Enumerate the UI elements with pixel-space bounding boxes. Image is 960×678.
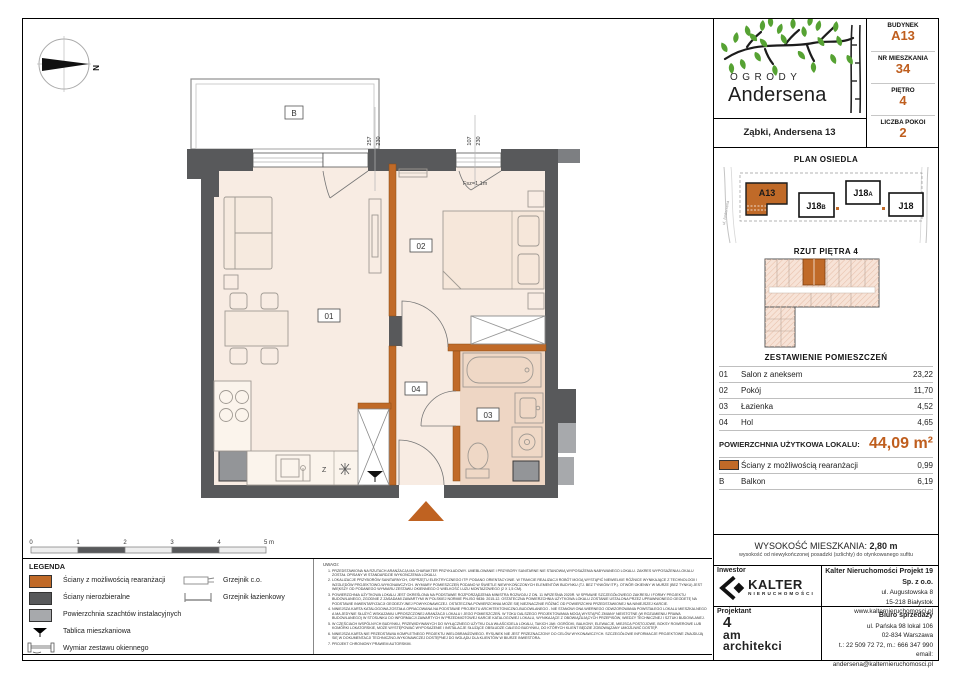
svg-text:A13: A13 — [759, 188, 776, 198]
company-name: Kalter Nieruchomości Projekt 19 Sp. z o.… — [823, 567, 933, 588]
wardrobe-box — [471, 316, 545, 344]
logo-ogrody: OGRODY — [730, 72, 801, 83]
floor-plan-drawing: N B — [23, 19, 713, 556]
svg-text:03: 03 — [484, 411, 493, 420]
orange-wall-swatch — [719, 460, 739, 470]
svg-text:0: 0 — [29, 540, 33, 546]
info-value: 4 — [867, 94, 939, 108]
svg-text:J18: J18 — [898, 201, 913, 211]
project-address: Ząbki, Andersena 13 — [713, 127, 866, 138]
sales-phone[interactable]: t.: 22 509 72 72, m.: 666 347 990 — [823, 641, 933, 651]
svg-text:5 m: 5 m — [264, 540, 274, 546]
radiator-co-legend-icon — [183, 575, 217, 587]
site-plan-map: A13 J18B J18A J18 ul. Andersena — [716, 165, 936, 245]
height-note: wysokość od niewykończonej posadzki (szl… — [713, 552, 939, 558]
washing-machine — [512, 427, 542, 457]
notes-block: UWAGI: PRZEDSTAWIONA NA RZUTACH ARANŻACJ… — [323, 562, 707, 652]
site-building-j18: J18 — [889, 193, 923, 216]
kalter-logo-text: KALTER — [748, 578, 815, 591]
window-set-legend-icon — [27, 642, 55, 654]
investor-address: Kalter Nieruchomości Projekt 19 Sp. z o.… — [823, 567, 933, 617]
brand-logo: OGRODY Andersena — [713, 19, 866, 118]
site-plan-title: PLAN OSIEDLA — [713, 155, 939, 164]
table-row: 02Pokój11,70 — [719, 382, 933, 398]
rooms-table: ZESTAWIENIE POMIESZCZEŃ 01Salon z anekse… — [719, 353, 933, 490]
svg-text:02: 02 — [417, 242, 426, 251]
apartment-height: WYSOKOŚĆ MIESZKANIA: 2,80 m wysokość od … — [713, 541, 939, 558]
balcony-label: B — [291, 109, 296, 118]
svg-text:2: 2 — [123, 540, 127, 546]
entrance-arrow-icon — [408, 501, 444, 521]
total-area-value: 44,09 m² — [869, 435, 933, 453]
table-row-walls: Ściany z możliwością rearanżacji0,99 — [719, 457, 933, 473]
designer-block: Projektant 4 am architekci — [713, 606, 821, 660]
street-label: ul. Andersena — [721, 199, 730, 225]
parapet-label: Fsz=1,1m — [463, 181, 488, 187]
table-row: 04Hol4,65 — [719, 414, 933, 430]
kalter-logo-icon — [719, 575, 745, 601]
sales-office-title: Biuro sprzedaży — [823, 611, 933, 622]
scale-bar: 0 1 2 3 4 5 m — [29, 540, 274, 553]
svg-text:4: 4 — [217, 540, 221, 546]
4am-architekci-logo: 4 am architekci — [713, 616, 821, 652]
floor-thumbnail — [751, 257, 901, 353]
legend-title: LEGENDA — [29, 562, 65, 571]
total-area-row: POWIERZCHNIA UŻYTKOWA LOKALU: 44,09 m² — [719, 430, 933, 457]
legend-notes-strip: LEGENDA Ściany z możliwością rearanżacji… — [23, 558, 712, 655]
table-row-balcony: BBalkon6,19 — [719, 473, 933, 490]
rooms-table-title: ZESTAWIENIE POMIESZCZEŃ — [719, 353, 933, 362]
total-area-label: POWIERZCHNIA UŻYTKOWA LOKALU: — [719, 440, 860, 449]
legend-swatch-orange — [29, 575, 52, 588]
notes-title: UWAGI: — [323, 562, 707, 568]
svg-text:04: 04 — [412, 385, 421, 394]
svg-text:230: 230 — [376, 136, 382, 145]
info-value: A13 — [867, 29, 939, 43]
svg-text:257: 257 — [367, 136, 373, 145]
site-building-j18a: J18A — [846, 181, 880, 204]
sales-email[interactable]: email: andersena@kalternieruchomosci.pl — [823, 650, 933, 669]
floor-thumb-title: RZUT PIĘTRA 4 — [713, 247, 939, 256]
catalog-sheet: N B — [22, 18, 939, 661]
north-label: N — [91, 65, 100, 71]
balcony: B — [191, 79, 379, 149]
height-value: 2,80 m — [870, 541, 898, 551]
radiator-bathroom-legend-icon — [183, 592, 217, 604]
svg-text:230: 230 — [476, 136, 482, 145]
apartment-sign-legend-icon — [32, 627, 48, 638]
investor-label: Inwestor — [713, 565, 821, 574]
sales-office: Biuro sprzedaży ul. Pańska 98 lokal 106 … — [823, 611, 933, 670]
sink-label: Z — [322, 467, 327, 474]
svg-text:3: 3 — [170, 540, 174, 546]
bathtub — [463, 353, 541, 387]
washbasin — [515, 393, 543, 423]
legend-swatch-dark — [29, 592, 52, 605]
north-arrow-icon: N — [37, 36, 100, 92]
logo-andersena: Andersena — [728, 84, 827, 107]
svg-text:1: 1 — [76, 540, 80, 546]
svg-text:107: 107 — [467, 136, 473, 145]
info-value: 34 — [867, 62, 939, 76]
toilet — [466, 443, 489, 478]
svg-text:01: 01 — [325, 312, 334, 321]
investor-block: Inwestor KALTER NIERUCHOMOŚCI — [713, 565, 821, 606]
table-row: 03Łazienka4,52 — [719, 398, 933, 414]
kalter-logo-subtext: NIERUCHOMOŚCI — [748, 591, 815, 597]
table-row: 01Salon z aneksem23,22 — [719, 366, 933, 382]
site-building-a13: A13 — [746, 183, 787, 215]
site-building-j18b: J18B — [799, 193, 834, 217]
legend-swatch-light — [29, 609, 52, 622]
info-value: 2 — [867, 126, 939, 140]
